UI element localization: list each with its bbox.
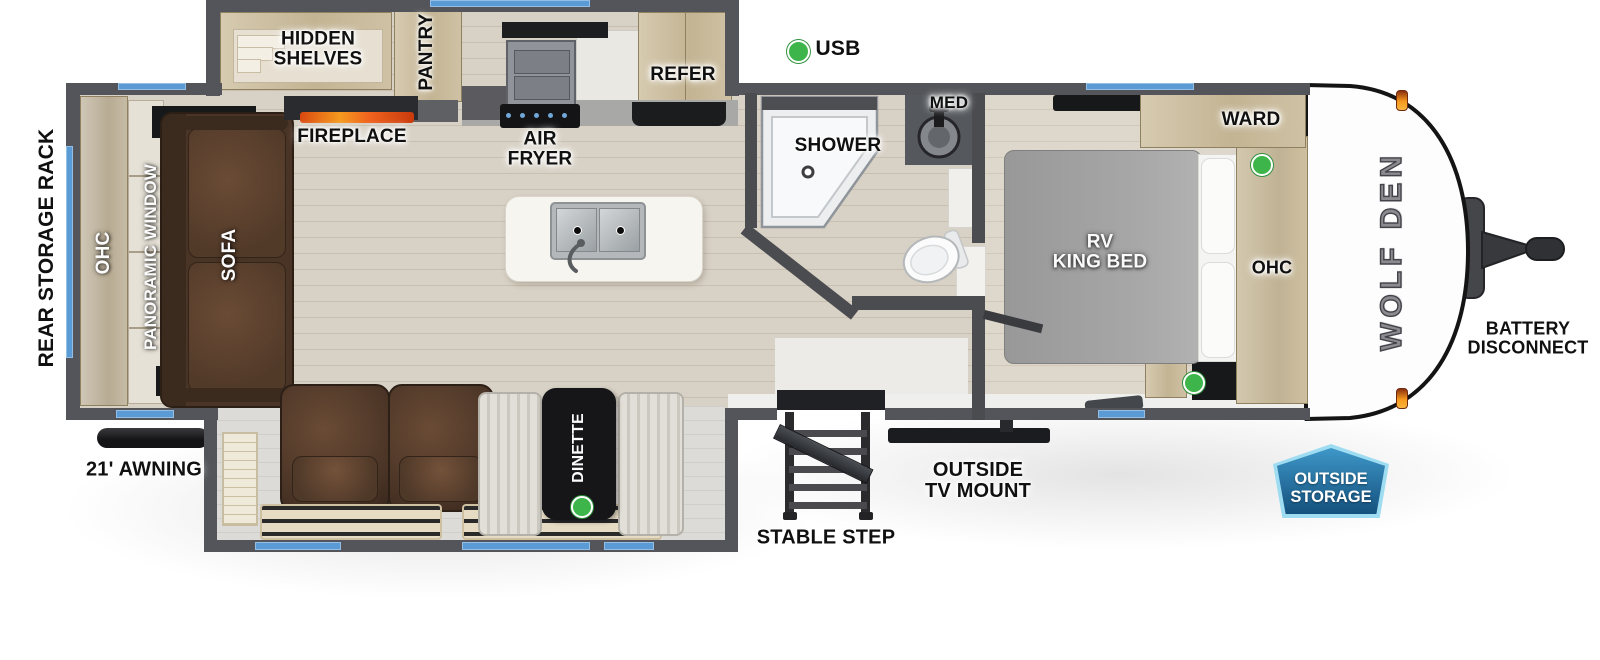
stable-step-label: STABLE STEP [757, 528, 896, 549]
refer-label: REFER [650, 65, 715, 85]
slideout-window-blinds [222, 432, 258, 526]
dinette-bench [618, 392, 684, 536]
outside-tv-mount-label: OUTSIDE TV MOUNT [925, 460, 1031, 502]
dinette-label: DINETTE [570, 413, 588, 483]
theater-seat [280, 384, 390, 512]
sofa-cushion [188, 262, 286, 392]
brand-logo: WOLF DEN [1375, 151, 1409, 351]
window-strip [1086, 83, 1194, 90]
top-wall-main [737, 83, 1310, 95]
rear-storage-rack-label: REAR STORAGE RACK [35, 129, 59, 368]
sofa-armrest [182, 388, 288, 402]
fireplace-label: FIREPLACE [297, 127, 406, 147]
bottom-wall-entry [738, 408, 777, 420]
pillow [1201, 158, 1235, 254]
counter-marble [576, 30, 640, 110]
window-strip [116, 410, 174, 418]
sofa-armrest [182, 116, 288, 130]
shower [760, 95, 880, 230]
marker-light-top [1396, 90, 1408, 111]
shower-label: SHOWER [795, 136, 882, 156]
shelf-step [237, 59, 261, 73]
awning-label: 21' AWNING [86, 460, 202, 481]
dinette-bench [478, 392, 542, 536]
ward-label: WARD [1222, 110, 1281, 130]
entry-floor [775, 338, 968, 396]
window-strip [1098, 410, 1145, 418]
rv-king-bed-label: RV KING BED [1053, 232, 1148, 272]
sofa-label: SOFA [219, 229, 241, 282]
kitchen-slideout-left-wall [206, 0, 220, 96]
rear-ohc-label: OHC [93, 232, 115, 275]
toilet [895, 222, 977, 294]
usb-dot-bedroom-upper [1251, 154, 1273, 176]
usb-legend-label: USB [816, 38, 861, 60]
seat-base [260, 504, 442, 540]
floorplan-canvas: WOLF DEN [0, 0, 1600, 660]
range-hood [502, 22, 608, 38]
outside-storage-label: OUTSIDE STORAGE [1290, 470, 1371, 507]
bedroom-ohc-label: OHC [1252, 259, 1293, 278]
island-faucet [556, 238, 600, 278]
pillow [1201, 262, 1235, 358]
cooktop [500, 104, 580, 128]
bedroom-wall-lower [972, 308, 985, 420]
window-strip [462, 542, 590, 550]
med-label: MED [930, 94, 968, 112]
awning-roll [97, 428, 209, 448]
marker-light-bottom [1396, 388, 1408, 409]
bedroom-wall-upper [972, 93, 985, 243]
battery-disconnect-label: BATTERY DISCONNECT [1467, 319, 1588, 356]
dinette-slideout-left-wall [204, 418, 217, 552]
usb-dot-dinette [571, 496, 593, 518]
entry-door-threshold [777, 390, 885, 410]
window-strip [118, 83, 186, 90]
usb-dot-bedroom-lower [1183, 372, 1205, 394]
air-fryer-label: AIR FRYER [508, 129, 573, 169]
refer-drawer [632, 102, 726, 126]
pantry-label: PANTRY [416, 13, 438, 90]
usb-legend-dot [787, 40, 810, 63]
panoramic-window-label: PANORAMIC WINDOW [141, 164, 161, 350]
outside-tv-mount-bar [888, 428, 1050, 443]
window-strip [430, 0, 590, 7]
bath-wall-bottom [852, 296, 985, 310]
kitchen-slideout-right-wall [725, 0, 739, 96]
bath-wall-left [745, 93, 757, 228]
window-strip [255, 542, 341, 550]
rear-window-strip [66, 146, 73, 358]
refrigerator [638, 12, 732, 107]
dinette-slideout-right-wall [725, 408, 738, 540]
sofa-back [162, 114, 186, 406]
air-fryer-oven [506, 40, 576, 108]
window-strip [604, 542, 654, 550]
fireplace-flame [300, 112, 414, 123]
hidden-shelves-label: HIDDEN SHELVES [274, 29, 363, 69]
